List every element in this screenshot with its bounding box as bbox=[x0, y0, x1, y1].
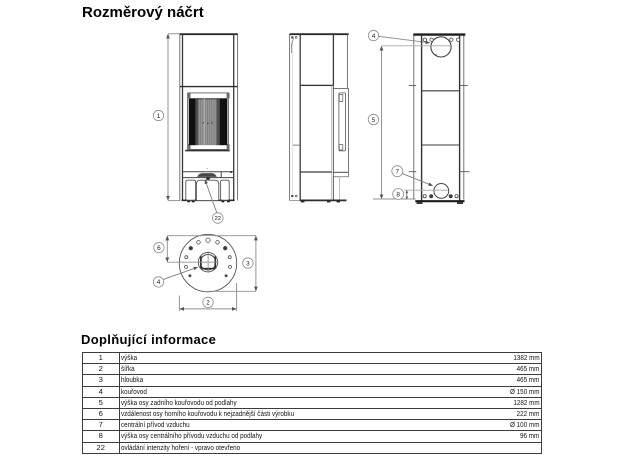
svg-text:1: 1 bbox=[157, 113, 161, 120]
svg-text:22: 22 bbox=[215, 216, 222, 222]
svg-text:4: 4 bbox=[157, 279, 161, 286]
svg-text:3: 3 bbox=[246, 260, 250, 267]
svg-text:4: 4 bbox=[372, 33, 376, 40]
svg-text:8: 8 bbox=[396, 191, 400, 198]
svg-text:2: 2 bbox=[206, 300, 210, 307]
svg-text:6: 6 bbox=[157, 245, 161, 252]
svg-text:7: 7 bbox=[396, 169, 400, 176]
svg-text:5: 5 bbox=[372, 117, 376, 124]
